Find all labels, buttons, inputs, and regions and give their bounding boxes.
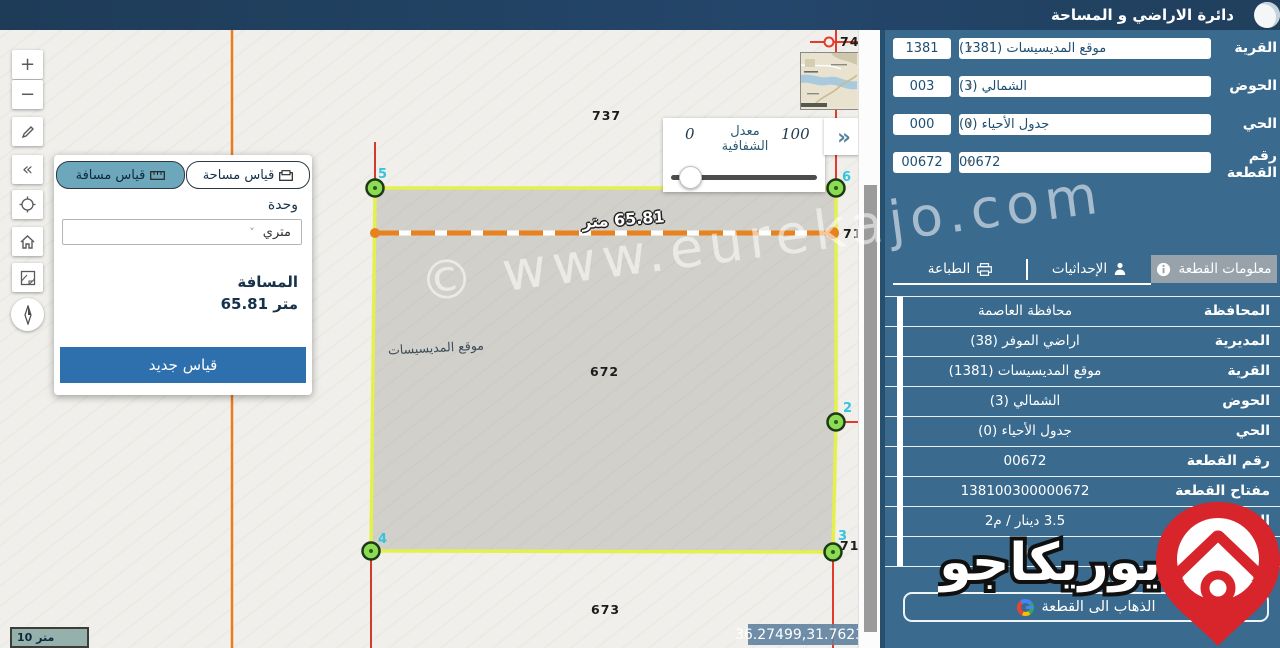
compass-needle-icon [21,305,35,325]
brand-wordmark: يوريكاجو [938,533,1161,593]
transparency-panel: 0 معدل الشفافية 100 [663,118,825,192]
district-code-box[interactable]: 000 [893,114,951,135]
tab-coordinates[interactable]: الإحداثيات [1027,255,1151,283]
minus-icon: − [20,84,35,105]
brand-watermark: يوريكاجو [938,498,1280,648]
parcel-code-box[interactable]: 00672 [893,152,951,173]
tab-print[interactable]: الطباعة [895,255,1025,283]
village-code-box[interactable]: 1381 [893,38,951,59]
expand-panel-button[interactable]: » [824,118,858,155]
measure-endpoint-west[interactable] [370,228,380,238]
vertex-label-2: 2 [843,401,852,416]
distance-value: متر 65.81 [221,295,298,313]
plus-icon: + [20,54,35,75]
parcel-number-672: 672 [590,364,619,379]
village-label: القرية [1215,40,1277,57]
dls-map-viewer: { "header": { "title": "دائرة الاراضي و … [0,0,1280,648]
crosshair-icon [19,196,36,213]
district-dropdown[interactable]: ▾جدول الأحياء (0) [959,114,1211,135]
parcel-number-746: 746 [840,34,858,49]
transparency-max: 100 [781,125,810,143]
transparency-slider-knob[interactable] [679,166,702,189]
info-icon [1156,262,1171,277]
vertex-label-6: 6 [842,170,851,185]
unit-select-value: متري [263,225,291,240]
zoom-out-button[interactable]: − [12,80,43,109]
new-measure-button[interactable]: قياس جديد [60,347,306,383]
block-dropdown[interactable]: ▾الشمالي (3) [959,76,1211,97]
person-pin-icon [1114,262,1126,276]
tab-parcel-info[interactable]: معلومات القطعة [1151,255,1277,283]
double-chevron-left-icon: « [22,159,33,180]
app-title: دائرة الاراضي و المساحة [1051,0,1234,30]
vertical-scrollbar[interactable] [858,30,881,648]
vertex-label-4: 4 [378,532,387,547]
measure-panel: قياس مسافة قياس مساحة وحدة ˅ متري المساف… [54,155,312,395]
tabs-underline [893,283,1151,285]
district-label: الحي [1215,116,1277,133]
village-dropdown[interactable]: ▾موقع المديسيسات (1381) [959,38,1211,59]
dls-logo [1254,2,1280,28]
compass-button[interactable] [11,298,44,331]
tab-measure-area[interactable]: قياس مساحة [186,161,310,189]
dropdown-arrow-icon: ▾ [967,157,972,168]
pencil-icon [20,124,36,140]
vertex-label-5: 5 [378,167,387,182]
dropdown-arrow-icon: ▾ [967,81,972,92]
cursor-coordinates: 36.27499,31.76235 [748,624,858,645]
scale-bar: 10 متر [10,627,89,648]
dropdown-arrow-icon: ▾ [967,43,972,54]
parcel-number-label: رقم القطعة [1215,148,1277,182]
unit-label: وحدة [268,197,298,213]
zoom-in-button[interactable]: + [12,50,43,79]
overview-inset-map[interactable] [800,52,858,110]
distance-label: المسافة [237,273,298,291]
printer-icon [977,263,992,276]
locate-button[interactable] [12,190,43,219]
basemap-button[interactable] [12,263,43,292]
home-icon [19,234,36,250]
app-header: دائرة الاراضي و المساحة [0,0,1280,30]
vertex-label-3: 3 [838,529,847,544]
transparency-min: 0 [685,125,695,143]
collapse-button[interactable]: « [12,155,43,184]
inset-map-art [801,53,857,107]
transparency-label: معدل الشفافية [715,124,775,154]
parcel-number-737: 737 [592,108,621,123]
basemap-icon [20,270,36,286]
double-chevron-right-icon: » [837,125,851,149]
ruler-icon [150,171,165,180]
unit-select[interactable]: ˅ متري [62,219,302,245]
map-canvas[interactable]: 746 737 710 672 711 673 5 6 2 3 4 65.81 … [0,30,858,648]
area-icon [279,170,293,181]
block-code-box[interactable]: 003 [893,76,951,97]
block-label: الحوض [1215,78,1277,95]
home-button[interactable] [12,227,43,256]
draw-button[interactable] [12,117,43,146]
chevron-down-icon: ˅ [249,226,255,239]
dropdown-arrow-icon: ▾ [967,119,972,130]
marker-746-point [825,38,834,47]
parcel-number-673: 673 [591,602,620,617]
tab-measure-distance[interactable]: قياس مسافة [56,161,185,189]
brand-pin-icon [1156,502,1280,646]
